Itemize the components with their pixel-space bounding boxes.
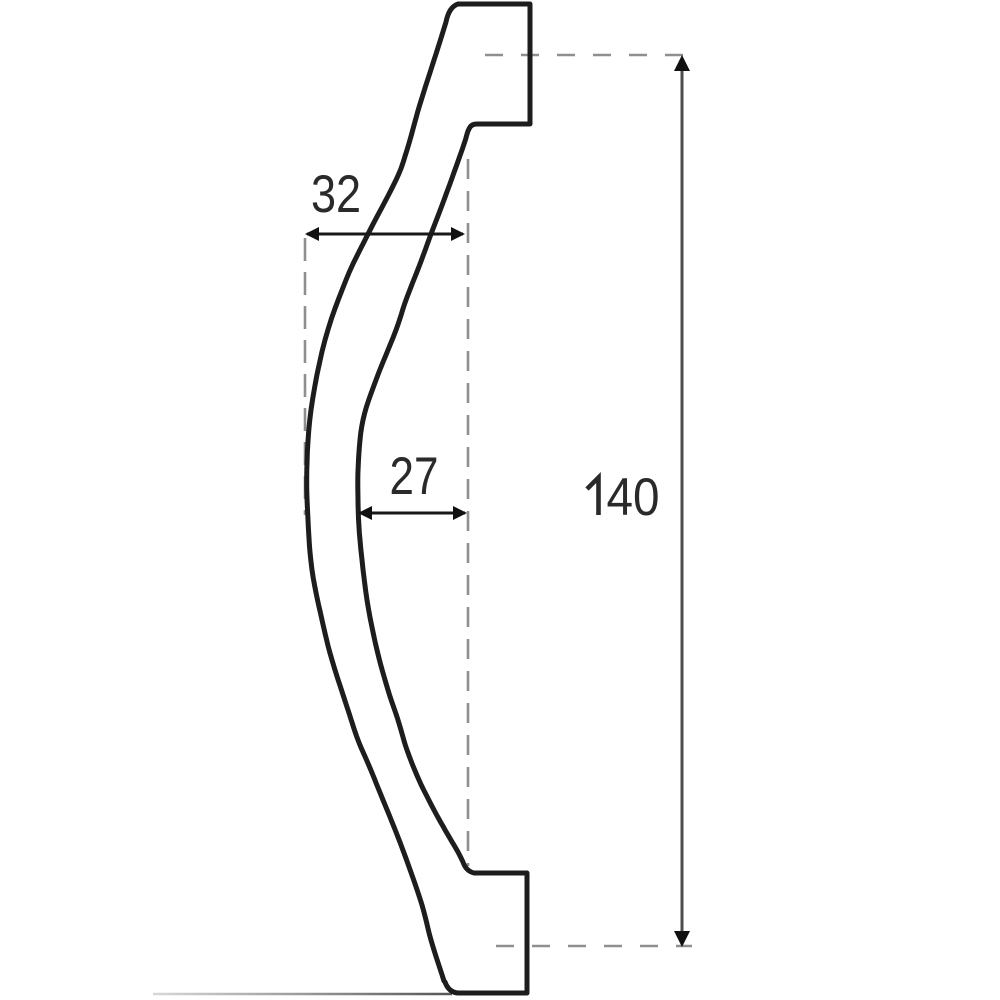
svg-text:40: 40	[606, 467, 659, 527]
svg-text:32: 32	[311, 165, 361, 224]
svg-text:27: 27	[390, 447, 439, 506]
